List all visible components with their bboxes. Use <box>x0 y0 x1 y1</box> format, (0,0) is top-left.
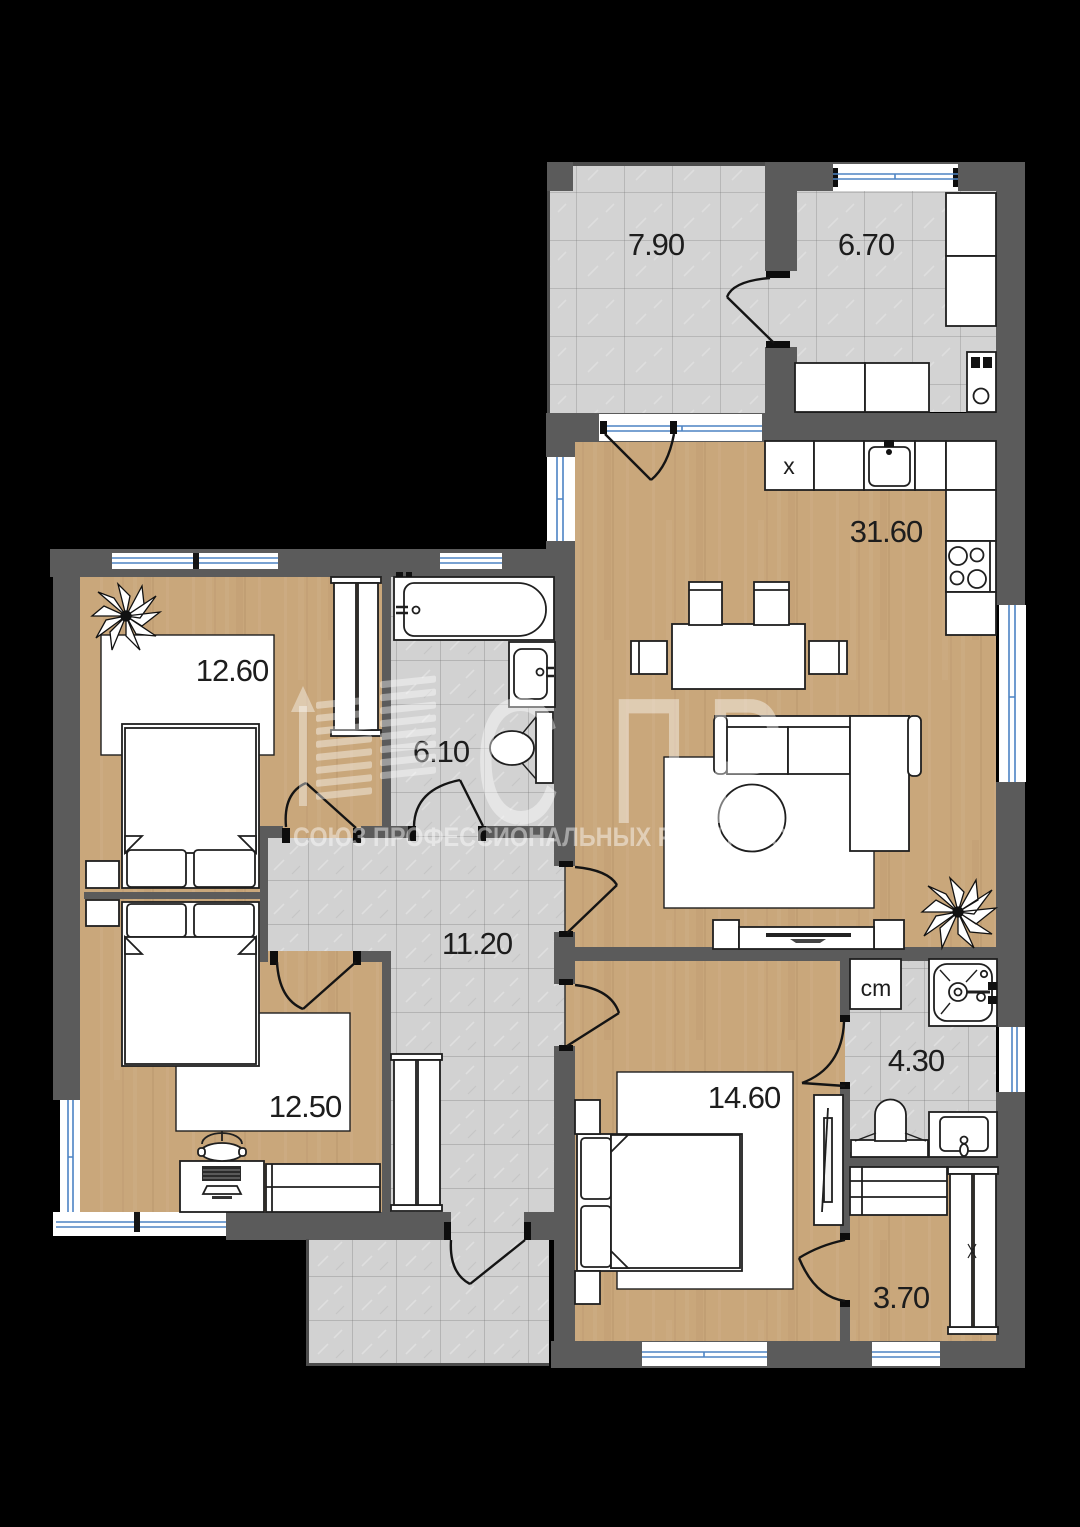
svg-text:6.70: 6.70 <box>838 227 895 262</box>
svg-text:7.90: 7.90 <box>628 227 685 262</box>
svg-text:3.70: 3.70 <box>873 1280 930 1315</box>
svg-text:14.60: 14.60 <box>708 1080 781 1115</box>
svg-text:11.20: 11.20 <box>442 926 513 961</box>
svg-text:12.60: 12.60 <box>196 653 269 688</box>
svg-text:cm: cm <box>861 975 892 1001</box>
svg-text:x: x <box>783 453 795 479</box>
svg-text:12.50: 12.50 <box>269 1089 342 1124</box>
svg-text:4.30: 4.30 <box>888 1043 945 1078</box>
svg-text:31.60: 31.60 <box>850 514 923 549</box>
svg-text:СОЮЗ ПРОФЕССИОНАЛЬНЫХ РИЭЛТОРО: СОЮЗ ПРОФЕССИОНАЛЬНЫХ РИЭЛТОРОВ <box>293 822 805 852</box>
svg-text:6.10: 6.10 <box>413 734 470 769</box>
